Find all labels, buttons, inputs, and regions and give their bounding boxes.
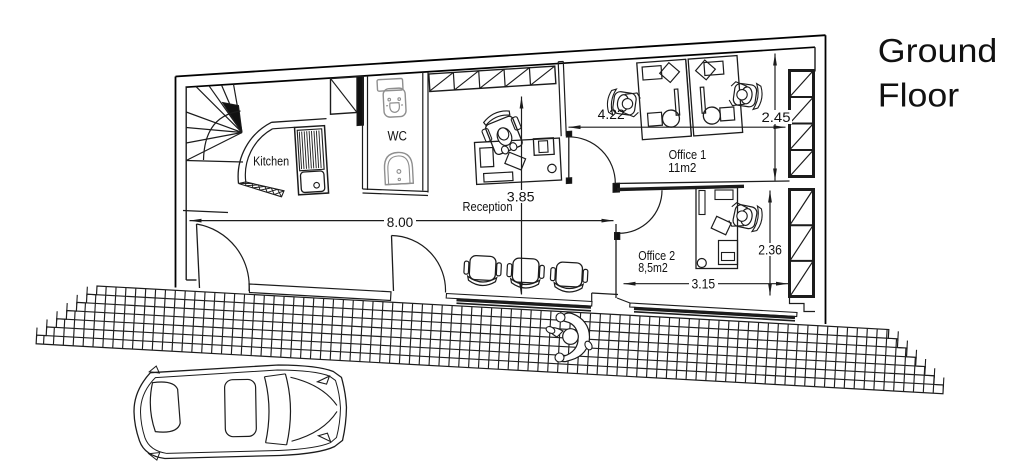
svg-text:Reception: Reception (463, 199, 513, 214)
svg-text:2.36: 2.36 (758, 242, 782, 257)
svg-text:3.15: 3.15 (692, 276, 716, 291)
svg-text:4.22: 4.22 (598, 107, 625, 122)
svg-text:8,5m2: 8,5m2 (638, 260, 668, 275)
svg-text:8.00: 8.00 (387, 215, 413, 230)
svg-text:11m2: 11m2 (668, 160, 696, 175)
svg-text:WC: WC (388, 129, 408, 144)
svg-text:Ground: Ground (878, 33, 998, 70)
svg-text:Kitchen: Kitchen (253, 155, 289, 169)
svg-text:2.45: 2.45 (762, 110, 791, 125)
svg-text:Floor: Floor (878, 78, 959, 115)
